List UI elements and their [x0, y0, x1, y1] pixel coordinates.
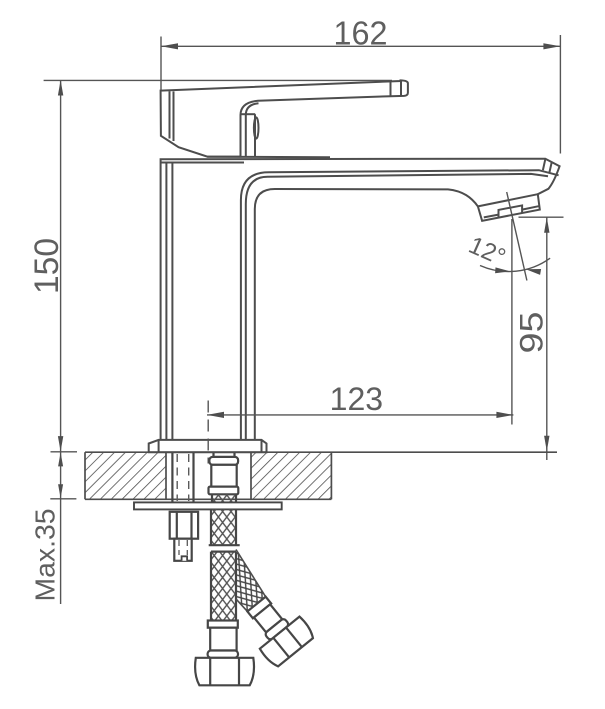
svg-text:150: 150	[28, 238, 66, 294]
svg-text:95: 95	[514, 312, 550, 354]
svg-text:123: 123	[330, 381, 384, 417]
svg-text:12°: 12°	[465, 232, 510, 272]
svg-text:162: 162	[334, 16, 388, 53]
svg-text:Max.35: Max.35	[30, 509, 61, 602]
